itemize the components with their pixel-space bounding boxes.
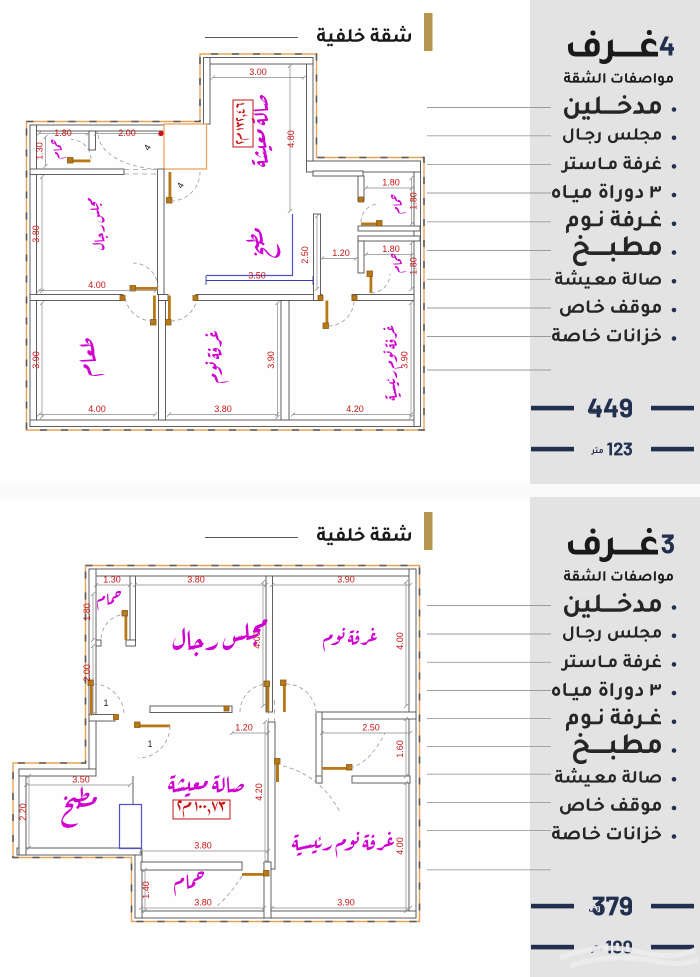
svg-text:1.40: 1.40 (141, 881, 151, 899)
svg-text:1.80: 1.80 (382, 244, 400, 254)
svg-text:3.80: 3.80 (194, 841, 212, 851)
svg-text:4.20: 4.20 (346, 404, 364, 414)
svg-text:3.80: 3.80 (214, 404, 232, 414)
svg-text:3.90: 3.90 (31, 351, 41, 369)
svg-text:3.90: 3.90 (400, 351, 410, 369)
svg-text:4.00: 4.00 (395, 632, 405, 650)
svg-text:1: 1 (147, 739, 152, 749)
svg-text:3.50: 3.50 (72, 775, 90, 785)
svg-text:1.80: 1.80 (409, 192, 419, 210)
svg-text:2.50: 2.50 (362, 723, 380, 733)
svg-text:4.00: 4.00 (88, 280, 106, 290)
svg-text:1: 1 (103, 698, 108, 708)
svg-text:4.80: 4.80 (286, 130, 296, 148)
svg-text:2.20: 2.20 (18, 803, 28, 821)
svg-text:3.80: 3.80 (187, 575, 205, 585)
svg-text:3.90: 3.90 (337, 898, 355, 908)
svg-text:1.80: 1.80 (82, 603, 92, 621)
svg-text:4.20: 4.20 (254, 783, 264, 801)
svg-text:1.60: 1.60 (395, 740, 405, 758)
svg-text:3.50: 3.50 (248, 271, 266, 281)
svg-text:1.30: 1.30 (35, 142, 45, 160)
svg-text:1.80: 1.80 (54, 128, 72, 138)
svg-text:2.50: 2.50 (300, 246, 310, 264)
svg-text:1.20: 1.20 (332, 248, 350, 258)
svg-text:4.00: 4.00 (88, 404, 106, 414)
svg-text:1.80: 1.80 (382, 178, 400, 188)
svg-text:1.30: 1.30 (103, 575, 121, 585)
svg-text:1.20: 1.20 (235, 723, 253, 733)
svg-text:1.80: 1.80 (409, 257, 419, 275)
svg-text:3.90: 3.90 (337, 575, 355, 585)
svg-text:2.00: 2.00 (82, 664, 92, 682)
svg-text:3.80: 3.80 (31, 225, 41, 243)
svg-text:2.00: 2.00 (118, 128, 136, 138)
svg-text:3.90: 3.90 (266, 351, 276, 369)
svg-text:3.00: 3.00 (249, 67, 267, 77)
svg-text:4.00: 4.00 (395, 837, 405, 855)
svg-text:3.80: 3.80 (194, 898, 212, 908)
